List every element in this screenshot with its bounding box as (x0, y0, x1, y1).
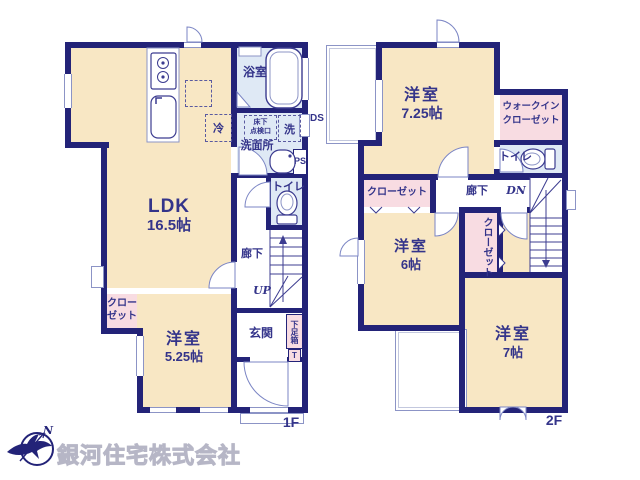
room-label-hallway-1f: 廊下 (239, 248, 265, 260)
washer-space: 洗 (278, 115, 301, 142)
pipe-space-box: PS (293, 149, 307, 175)
room-label-washroom: 洗面所 (237, 140, 277, 152)
company-logo-mark (7, 433, 53, 465)
wall (459, 213, 465, 413)
window (150, 407, 176, 413)
room-label-ldk: LDK (129, 196, 209, 217)
room-label-closet-b-2f: クローゼット (470, 217, 492, 271)
room-fill-bedroom1-2f (364, 146, 384, 174)
north-label: N (43, 424, 53, 437)
window (200, 407, 228, 413)
room-label-bedroom2-2f: 洋室 (371, 239, 451, 256)
door-opening (250, 357, 287, 362)
balcony-2f-top (326, 45, 379, 144)
shoe-box-label: 下足箱 (289, 320, 300, 344)
wall (497, 213, 503, 272)
window-swing-arc (340, 238, 358, 256)
door-arc (187, 27, 202, 42)
door-arc (244, 362, 288, 406)
room-label-hallway-2f: 廊下 (463, 185, 491, 197)
floorplan-canvas: PS 下足箱 T 冷 床下点検口 洗 (0, 0, 640, 480)
wall (231, 42, 237, 362)
window (357, 240, 365, 284)
wall (237, 108, 302, 113)
window-shutter (566, 190, 576, 210)
window (301, 58, 309, 100)
wall (494, 89, 568, 95)
room-label-bedroom-1f: 洋室 (144, 331, 224, 349)
shoe-box: 下足箱 (286, 314, 303, 349)
room-size-bedroom-1f: 5.25帖 (144, 350, 224, 365)
wall (459, 272, 568, 278)
stairs-2f (530, 177, 562, 272)
room-size-bedroom3-2f: 7帖 (473, 346, 553, 361)
room-label-walkin-closet: ウォークインクローゼット (500, 100, 562, 128)
door-opening (501, 207, 527, 213)
room-label-entrance: 玄関 (246, 327, 276, 340)
room-label-toilet-2f: トイレ (499, 151, 529, 163)
room-size-ldk: 16.5帖 (129, 218, 209, 235)
stairs-down-arrow (542, 260, 550, 268)
fridge-space: 冷 (205, 114, 232, 142)
company-name: 銀河住宅株式会社 (57, 438, 241, 470)
wall (358, 140, 364, 331)
window (136, 336, 144, 376)
wall (231, 362, 237, 413)
stairs-1f (270, 230, 302, 307)
door-opening (438, 174, 468, 180)
room-label-bath: 浴室 (240, 66, 270, 79)
wall (266, 225, 302, 230)
wall (266, 178, 271, 225)
shoe-box-tag: T (288, 349, 301, 362)
floor-label-1f: 1F (277, 415, 305, 431)
room-label-closet-1f: クローゼット (105, 297, 139, 323)
door-arc (437, 20, 459, 42)
room-label-toilet-1f: トイレ (272, 181, 302, 193)
room-size-bedroom2-2f: 6帖 (371, 258, 451, 273)
floor-label-2f: 2F (540, 413, 568, 429)
shoe-box-tag-label: T (292, 351, 297, 360)
room-fill-bedroom3-2f (503, 213, 530, 272)
door-opening (184, 42, 201, 48)
washer-label: 洗 (284, 121, 295, 137)
underfloor-hatch-label: 床下 (254, 119, 268, 126)
wall (358, 325, 465, 331)
stairs-down-label: DN (505, 185, 527, 197)
underfloor-hatch: 床下点検口 (244, 115, 277, 140)
wall (494, 42, 500, 95)
wall (237, 308, 302, 313)
door-opening (250, 407, 288, 413)
duct-label: DS (310, 114, 322, 125)
door-opening (231, 262, 237, 288)
balcony-2f-bottom (395, 329, 467, 411)
room-label-bedroom3-2f: 洋室 (473, 326, 553, 344)
window-shutter (91, 266, 104, 288)
room-label-closet-a-2f: クローゼット (367, 187, 427, 198)
door-opening (436, 207, 459, 213)
stairs-up-label: UP (251, 285, 273, 297)
fridge-label: 冷 (213, 120, 224, 136)
pipe-space-label: PS (294, 157, 306, 166)
window (64, 74, 72, 108)
door-opening (437, 42, 459, 48)
room-label-bedroom1-2f: 洋室 (382, 87, 462, 105)
stairs-up-arrow (279, 235, 287, 244)
wall (494, 140, 568, 145)
dashed-counter (185, 80, 212, 107)
room-size-bedroom1-2f: 7.25帖 (382, 106, 462, 122)
wall (562, 89, 568, 413)
